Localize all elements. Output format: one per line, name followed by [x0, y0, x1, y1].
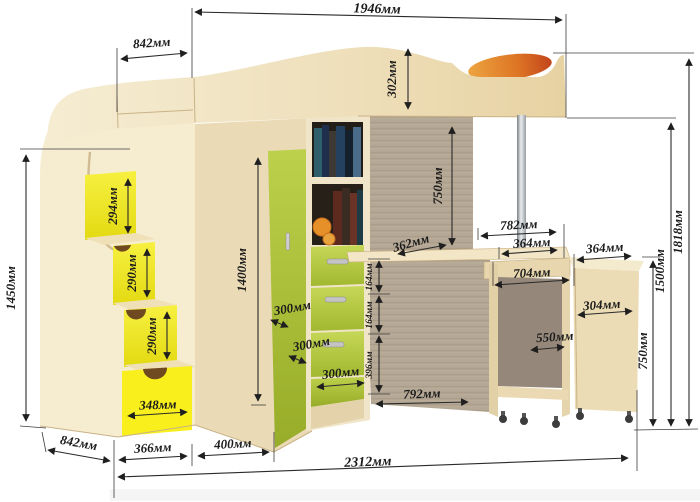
dim-label-headboard-height: 302мм: [384, 60, 399, 98]
dim-label-step-1: 294мм: [105, 187, 120, 225]
dim-label-desk-span: 782мм: [500, 216, 538, 233]
desk-cart: [489, 264, 570, 428]
dim-line-bottom-left-depth: [48, 450, 110, 461]
dim-label-platform-height: 1500мм: [652, 249, 667, 293]
shelf-drawer-2: [311, 286, 364, 331]
dim-label-top-depth: 842мм: [133, 34, 171, 52]
watermark-strip: [110, 489, 700, 501]
drawing-svg: 1946мм 842мм 302мм 1450мм 294мм 290мм 29…: [0, 0, 700, 502]
dim-label-drawer-h1: 164мм: [365, 263, 375, 291]
dim-label-step-3: 290мм: [144, 317, 159, 355]
dim-line-base-1: [119, 456, 187, 460]
dim-label-desk-area-depth: 792мм: [403, 385, 441, 401]
dim-label-cart-depth: 550мм: [536, 328, 574, 346]
drawer-handle-1: [327, 259, 348, 264]
dim-label-bottom-left-depth: 842мм: [59, 432, 98, 453]
dim-label-total-height: 1818мм: [670, 210, 685, 254]
dim-label-total-width: 2312мм: [343, 454, 392, 471]
cart-casters: [499, 411, 560, 428]
dim-label-desk-half: 364мм: [512, 234, 551, 251]
side-cabinet: [569, 257, 644, 423]
dim-label-lower-door: 396мм: [365, 351, 375, 380]
drawer-handle-2: [325, 297, 346, 302]
books-top-shelf: [314, 125, 361, 177]
cart-left-panel: [489, 264, 498, 417]
dim-label-cabinet-top: 364мм: [585, 239, 624, 257]
cart-shelf: [498, 386, 568, 400]
dim-label-base-1: 366мм: [133, 439, 172, 456]
back-panel-upper: [358, 115, 473, 252]
dim-label-underbed: 750мм: [430, 167, 445, 204]
furniture-dimension-drawing: 1946мм 842мм 302мм 1450мм 294мм 290мм 29…: [0, 0, 700, 502]
dim-line-top-depth: [121, 53, 187, 59]
dim-label-drawer-h2: 164мм: [365, 301, 375, 329]
dim-label-wardrobe-height: 1400мм: [234, 248, 249, 292]
dim-label-top-length: 1946мм: [353, 1, 401, 17]
dim-label-cabinet-height: 750мм: [635, 332, 650, 369]
cabinet-face: [573, 268, 639, 412]
dim-label-step-2: 290мм: [124, 254, 139, 292]
wardrobe-door-handle: [286, 233, 290, 250]
dim-label-base-2: 400мм: [213, 435, 252, 452]
shelf-drawer-1: [311, 245, 364, 286]
bookshelf-divider: [307, 177, 369, 184]
dim-label-left-height: 1450мм: [3, 266, 18, 310]
dim-label-step-drawer: 348мм: [138, 396, 177, 412]
dim-label-cabinet-width: 304мм: [582, 296, 621, 314]
dim-line-base-2: [198, 452, 269, 456]
dim-label-cart-width: 704мм: [513, 264, 551, 281]
